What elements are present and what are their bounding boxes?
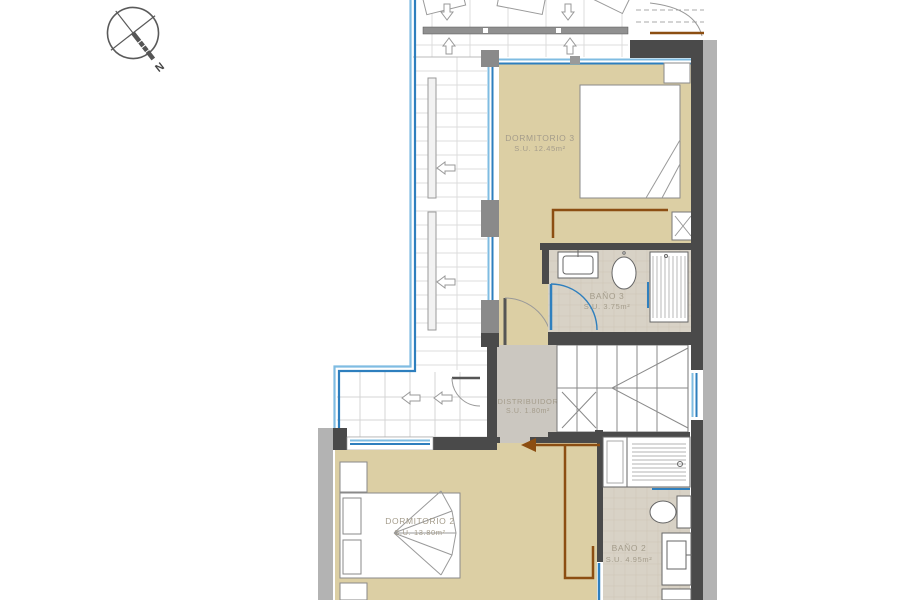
room-label: DORMITORIO 2: [385, 516, 454, 526]
room-label: DORMITORIO 3: [505, 133, 574, 143]
room-label: BAÑO 3: [590, 291, 625, 301]
compass-icon: N: [94, 0, 186, 90]
room-area-label: S.U. 3.75m²: [584, 302, 631, 311]
vanity-sink-icon: [662, 533, 692, 600]
room-label: BAÑO 2: [612, 543, 647, 553]
staircase: [557, 345, 688, 432]
room-dormitorio-2: DORMITORIO 2 S.U. 13.80m²: [335, 443, 597, 600]
floor-plan-page: N: [0, 0, 900, 600]
glass-railing: [335, 0, 416, 430]
room-area-label: S.U. 13.80m²: [394, 528, 445, 537]
terrace-door: [452, 378, 480, 406]
sink-icon: [558, 250, 598, 278]
room-bano-3: BAÑO 3 S.U. 3.75m²: [548, 250, 691, 332]
room-area-label: S.U. 1.80m²: [506, 408, 550, 415]
terrace-bench: [428, 212, 436, 330]
room-area-label: S.U. 4.95m²: [606, 555, 653, 564]
closet-top-right: [636, 3, 704, 36]
room-label: DISTRIBUIDOR: [498, 397, 559, 406]
floor-plan: N: [0, 0, 900, 600]
compass-north-label: N: [153, 60, 167, 74]
room-area-label: S.U. 12.45m²: [514, 144, 565, 153]
shaft-x-marker: [672, 212, 694, 240]
terrace-bench: [428, 78, 436, 198]
bathtub-icon: [603, 437, 690, 489]
room-bano-2: BAÑO 2 S.U. 4.95m²: [599, 437, 692, 600]
door-arc: [650, 3, 702, 36]
shower-icon: [648, 252, 688, 322]
pergola-beam: [423, 27, 628, 34]
